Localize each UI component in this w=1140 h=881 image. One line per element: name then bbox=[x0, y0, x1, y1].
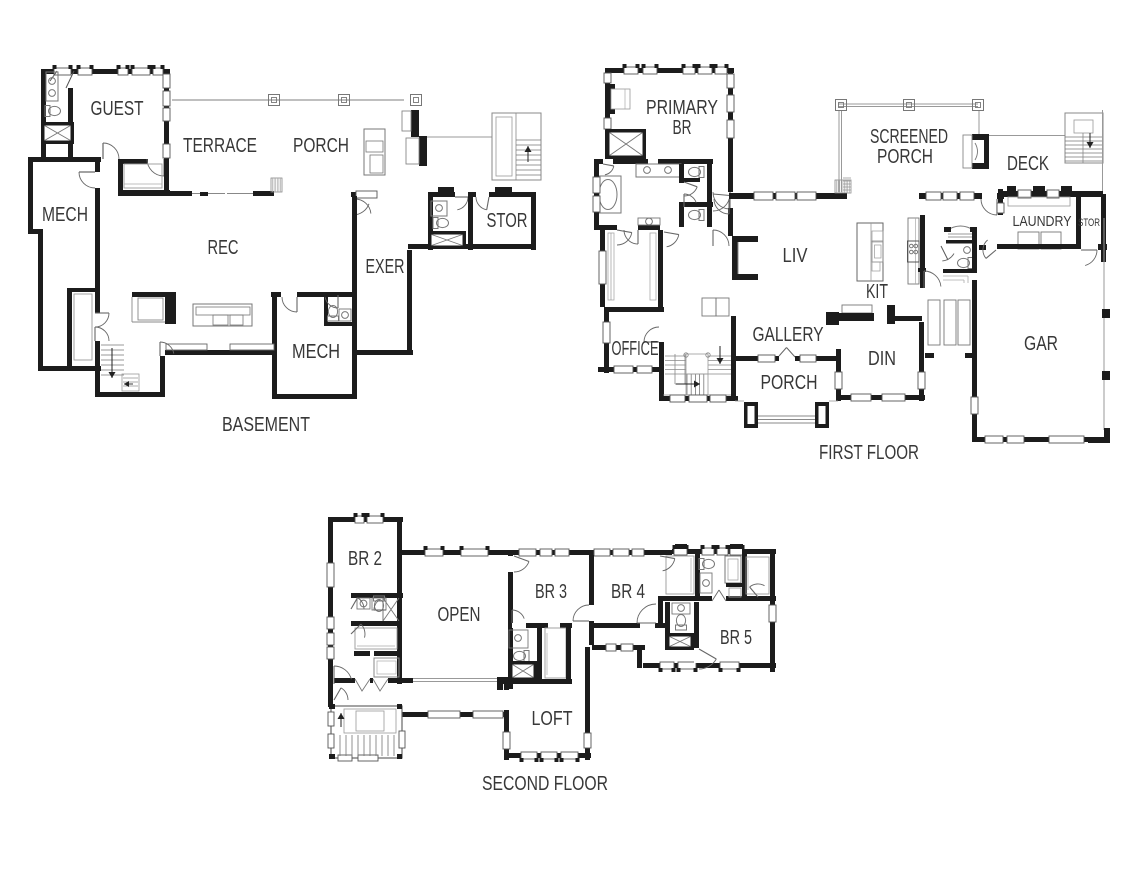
svg-text:PORCH: PORCH bbox=[293, 135, 349, 157]
svg-text:KIT: KIT bbox=[866, 281, 888, 303]
svg-text:STOR: STOR bbox=[487, 210, 528, 232]
svg-text:PORCH: PORCH bbox=[877, 146, 933, 168]
svg-text:MECH: MECH bbox=[292, 341, 340, 363]
svg-text:EXER: EXER bbox=[366, 256, 405, 278]
svg-text:BR 2: BR 2 bbox=[348, 548, 382, 570]
svg-text:BR 4: BR 4 bbox=[611, 581, 645, 603]
svg-text:LIV: LIV bbox=[783, 245, 809, 267]
svg-text:TERRACE: TERRACE bbox=[183, 135, 257, 157]
svg-text:SCREENED: SCREENED bbox=[870, 126, 948, 148]
svg-text:STOR: STOR bbox=[1078, 217, 1100, 229]
svg-text:LOFT: LOFT bbox=[532, 708, 573, 730]
svg-text:OPEN: OPEN bbox=[438, 604, 481, 626]
svg-text:LAUNDRY: LAUNDRY bbox=[1013, 213, 1072, 230]
svg-text:PORCH: PORCH bbox=[761, 372, 818, 394]
svg-text:BR 5: BR 5 bbox=[720, 627, 752, 649]
svg-text:PRIMARY: PRIMARY bbox=[646, 97, 718, 119]
svg-text:SECOND FLOOR: SECOND FLOOR bbox=[482, 773, 608, 795]
svg-text:GUEST: GUEST bbox=[91, 98, 144, 120]
svg-text:GAR: GAR bbox=[1024, 333, 1058, 355]
svg-text:BASEMENT: BASEMENT bbox=[222, 414, 310, 436]
svg-text:REC: REC bbox=[208, 237, 239, 259]
svg-text:FIRST FLOOR: FIRST FLOOR bbox=[819, 442, 919, 464]
svg-text:GALLERY: GALLERY bbox=[753, 324, 824, 346]
svg-text:OFFICE: OFFICE bbox=[612, 338, 659, 360]
svg-text:DECK: DECK bbox=[1007, 153, 1049, 175]
svg-text:DIN: DIN bbox=[868, 348, 896, 370]
svg-text:BR 3: BR 3 bbox=[535, 581, 567, 603]
svg-text:MECH: MECH bbox=[42, 204, 88, 226]
svg-text:BR: BR bbox=[673, 117, 692, 139]
